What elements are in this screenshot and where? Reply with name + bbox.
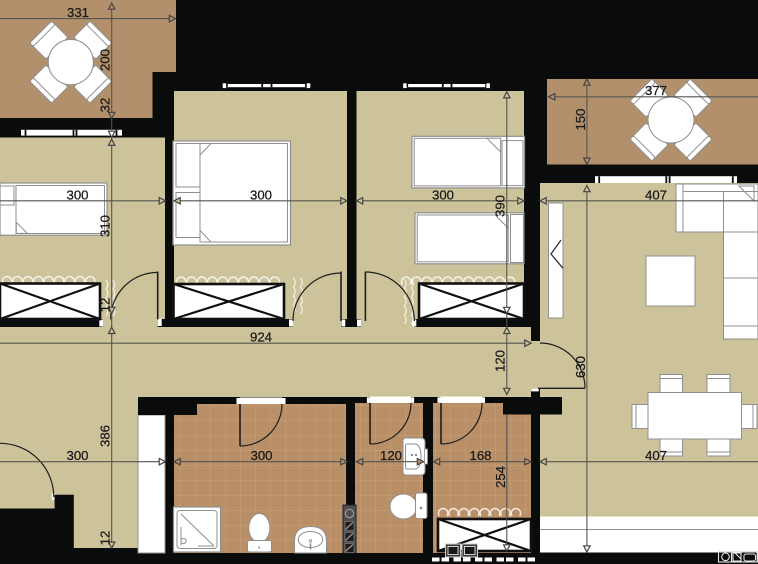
- svg-text:331: 331: [67, 5, 89, 20]
- svg-text:200: 200: [97, 49, 112, 71]
- svg-text:300: 300: [250, 187, 272, 202]
- svg-text:300: 300: [250, 448, 272, 463]
- svg-text:386: 386: [97, 425, 112, 447]
- svg-text:310: 310: [97, 215, 112, 237]
- svg-text:300: 300: [66, 187, 88, 202]
- svg-text:120: 120: [493, 350, 508, 372]
- svg-text:407: 407: [645, 187, 667, 202]
- svg-text:377: 377: [645, 83, 667, 98]
- svg-text:630: 630: [573, 356, 588, 378]
- svg-text:390: 390: [493, 195, 508, 217]
- svg-text:300: 300: [432, 187, 454, 202]
- svg-text:168: 168: [469, 448, 491, 463]
- svg-text:12: 12: [97, 531, 112, 546]
- svg-text:32: 32: [97, 98, 112, 113]
- svg-text:254: 254: [493, 466, 508, 488]
- svg-text:120: 120: [380, 448, 402, 463]
- svg-text:300: 300: [66, 448, 88, 463]
- svg-text:407: 407: [645, 448, 667, 463]
- svg-text:12: 12: [97, 298, 112, 313]
- svg-text:150: 150: [573, 108, 588, 130]
- svg-text:924: 924: [250, 330, 272, 345]
